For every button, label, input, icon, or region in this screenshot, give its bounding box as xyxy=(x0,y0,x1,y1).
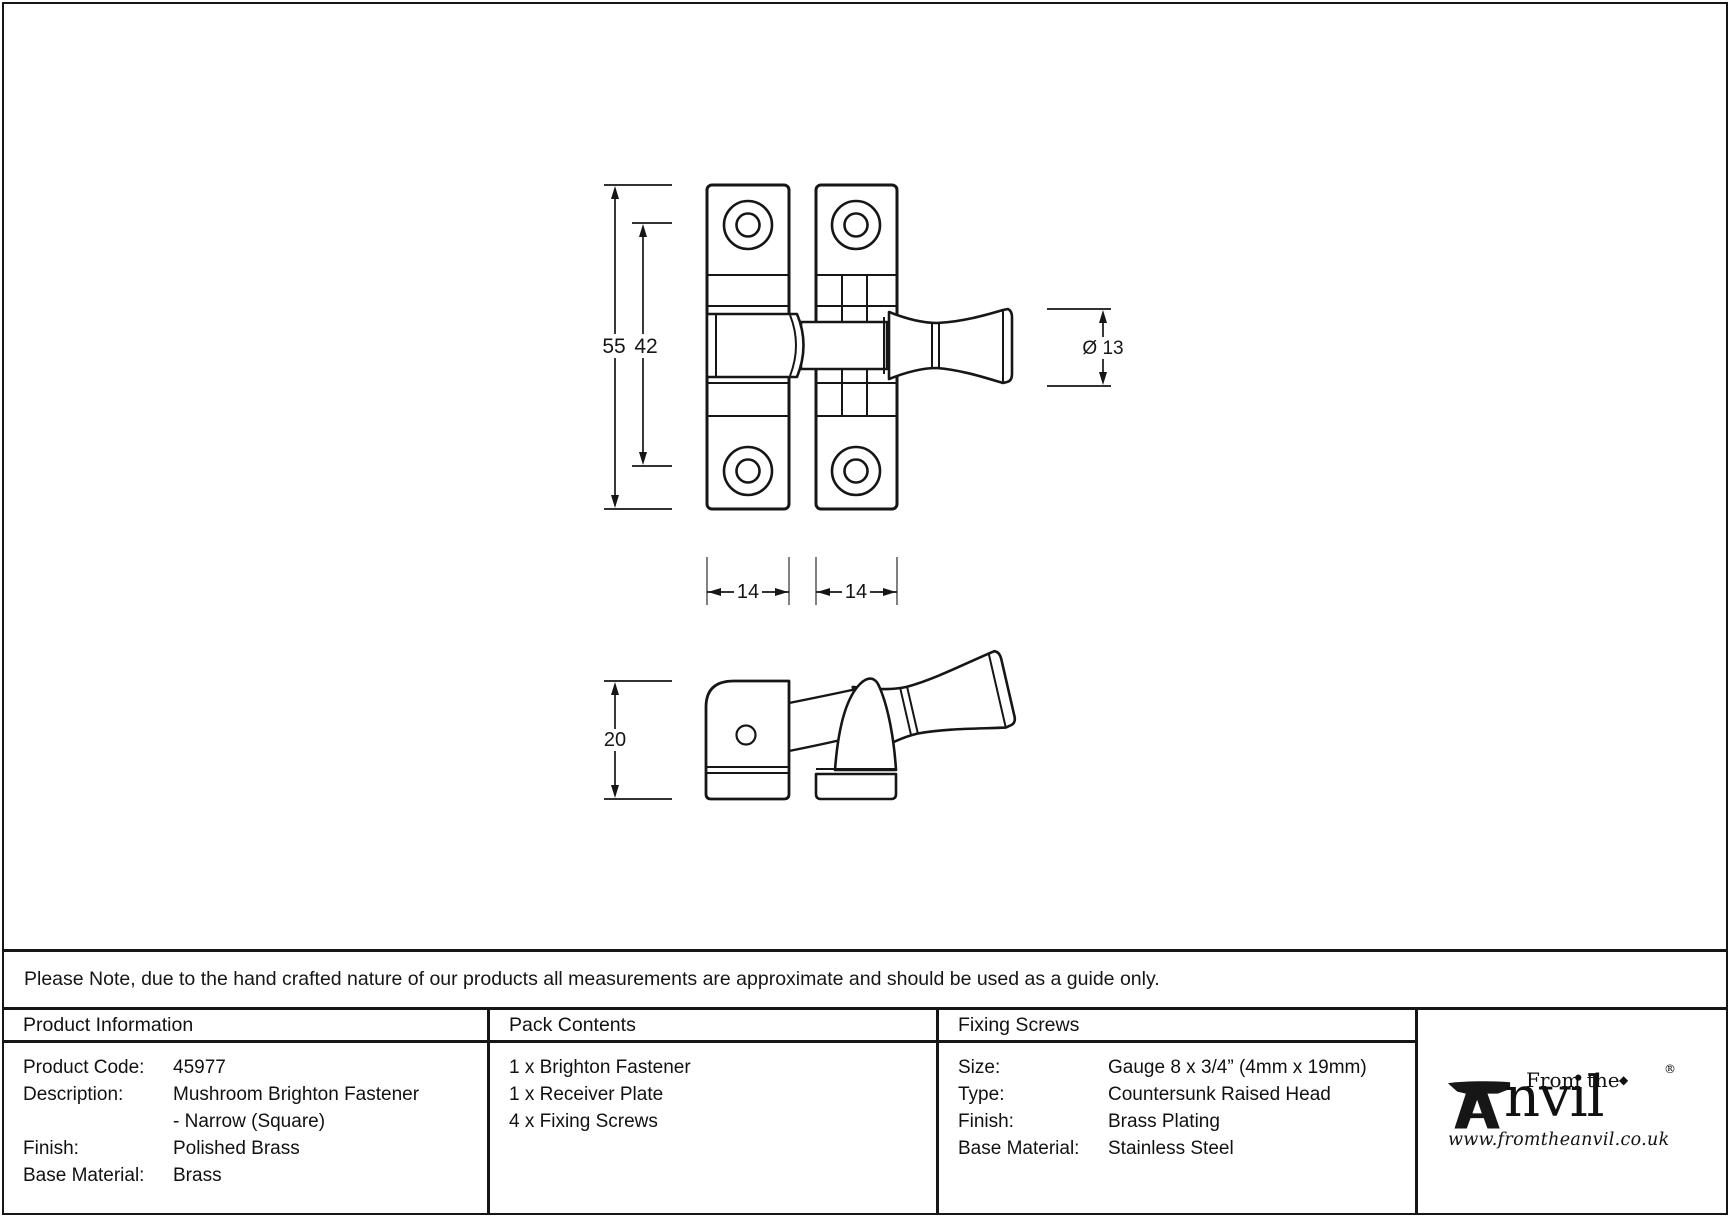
dim-plate-width-left: 14 xyxy=(737,581,759,603)
spec-value: Polished Brass xyxy=(173,1135,300,1162)
spec-value: Brass xyxy=(173,1162,222,1189)
fastener-side-view xyxy=(706,650,1017,799)
spec-label: Finish: xyxy=(958,1108,1108,1135)
measurement-note-text: Please Note, due to the hand crafted nat… xyxy=(24,968,1160,991)
spec-row: - Narrow (Square) xyxy=(23,1108,487,1135)
pack-item: 1 x Brighton Fastener xyxy=(509,1054,936,1081)
dim-overall-height: 55 xyxy=(602,335,625,358)
logo-website: www.fromtheanvil.co.uk xyxy=(1448,1130,1669,1150)
spec-row: Description: Mushroom Brighton Fastener xyxy=(23,1081,487,1108)
spec-value: Stainless Steel xyxy=(1108,1135,1234,1162)
spec-label: Finish: xyxy=(23,1135,173,1162)
brand-logo-cell: nvil From the ◆ ® www.fromtheanvil.co.uk xyxy=(1418,1010,1726,1213)
dim-hole-spacing: 42 xyxy=(634,335,657,358)
registered-mark-icon: ® xyxy=(1664,1062,1676,1076)
fixing-screws-cell: Size: Gauge 8 x 3/4” (4mm x 19mm) Type: … xyxy=(939,1043,1418,1213)
spec-value: Mushroom Brighton Fastener xyxy=(173,1081,419,1108)
spec-row: Base Material: Stainless Steel xyxy=(958,1135,1415,1162)
spec-value: Brass Plating xyxy=(1108,1108,1220,1135)
spec-row: Type: Countersunk Raised Head xyxy=(958,1081,1415,1108)
dim-knob-diameter-label: Ø 13 xyxy=(1082,338,1123,359)
pack-item: 1 x Receiver Plate xyxy=(509,1081,936,1108)
product-spec-table: Product Information Pack Contents Fixing… xyxy=(4,1007,1726,1213)
spec-label: Base Material: xyxy=(958,1135,1108,1162)
spec-row: Finish: Polished Brass xyxy=(23,1135,487,1162)
logo-from-the: From the xyxy=(1526,1068,1620,1092)
spec-label: Product Code: xyxy=(23,1054,173,1081)
measurement-note: Please Note, due to the hand crafted nat… xyxy=(4,949,1726,1007)
spec-label xyxy=(23,1108,173,1135)
pack-contents-cell: 1 x Brighton Fastener 1 x Receiver Plate… xyxy=(490,1043,939,1213)
spec-row: Product Code: 45977 xyxy=(23,1054,487,1081)
technical-drawing: 55 42 Ø 13 xyxy=(4,4,1730,948)
spec-row: Size: Gauge 8 x 3/4” (4mm x 19mm) xyxy=(958,1054,1415,1081)
fastener-front-view xyxy=(707,185,1012,509)
header-pack-contents: Pack Contents xyxy=(490,1010,939,1043)
from-the-anvil-logo: nvil From the ◆ ® www.fromtheanvil.co.uk xyxy=(1446,1064,1698,1160)
product-information-cell: Product Code: 45977 Description: Mushroo… xyxy=(4,1043,490,1213)
dim-plate-width-right: 14 xyxy=(845,581,867,603)
header-fixing-screws: Fixing Screws xyxy=(939,1010,1418,1043)
header-product-information: Product Information xyxy=(4,1010,490,1043)
spec-label: Base Material: xyxy=(23,1162,173,1189)
spec-label: Type: xyxy=(958,1081,1108,1108)
spec-value: 45977 xyxy=(173,1054,226,1081)
spec-value: Gauge 8 x 3/4” (4mm x 19mm) xyxy=(1108,1054,1367,1081)
spec-row: Finish: Brass Plating xyxy=(958,1108,1415,1135)
pack-item: 4 x Fixing Screws xyxy=(509,1108,936,1135)
spec-label: Size: xyxy=(958,1054,1108,1081)
spec-value: Countersunk Raised Head xyxy=(1108,1081,1331,1108)
spec-sheet-page: 55 42 Ø 13 xyxy=(2,2,1728,1215)
anvil-icon xyxy=(1446,1074,1512,1132)
spec-row: Base Material: Brass xyxy=(23,1162,487,1189)
dim-side-depth-label: 20 xyxy=(604,729,626,751)
spec-value: - Narrow (Square) xyxy=(173,1108,325,1135)
spec-label: Description: xyxy=(23,1081,173,1108)
diamond-icon: ◆ xyxy=(1619,1073,1628,1087)
